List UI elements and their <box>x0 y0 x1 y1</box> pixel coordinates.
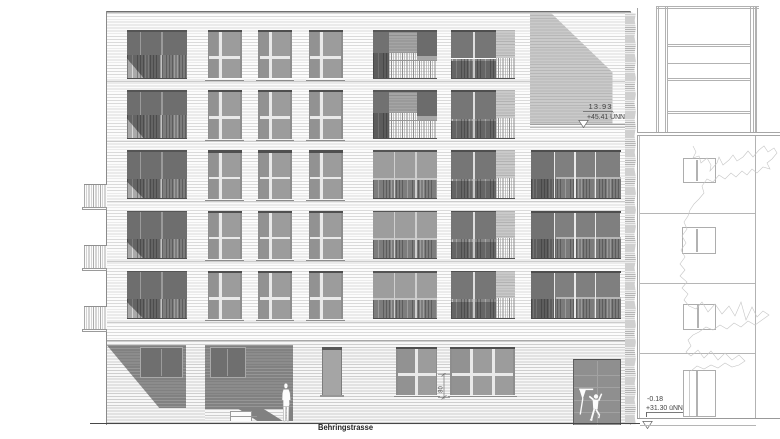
svg-text:80: 80 <box>439 385 445 392</box>
